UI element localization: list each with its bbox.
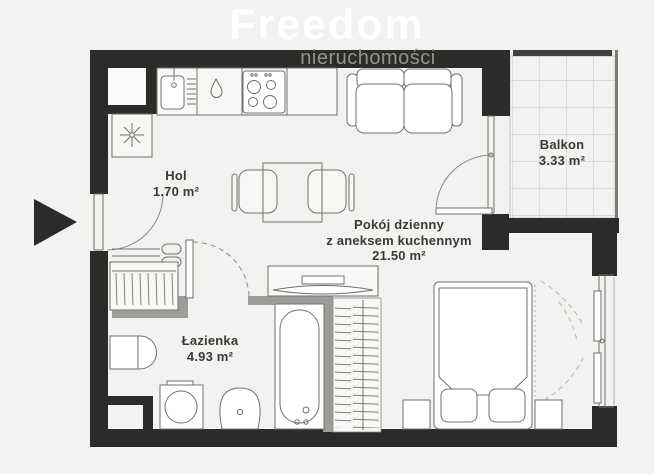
- bathroom-door-swing: [193, 242, 249, 298]
- bathroom-sink: [110, 336, 157, 369]
- pillow-left: [441, 389, 477, 422]
- room-area: 1.70 m²: [153, 184, 199, 200]
- balcony-rail: [615, 50, 618, 233]
- entrance-arrow: [34, 199, 77, 246]
- room-name-line2: z aneksem kuchennym: [326, 233, 471, 249]
- window-panel-upper: [594, 291, 601, 341]
- entrance-door: [94, 194, 163, 250]
- room-label-bathroom: Łazienka 4.93 m²: [182, 333, 239, 364]
- balcony-top-wall: [513, 50, 612, 56]
- pillow-right: [489, 389, 525, 422]
- wall-bath-niche-v: [143, 396, 153, 430]
- bedroom-window: [594, 275, 614, 407]
- floor-plan-screenshot: Hol 1.70 m² Pokój dzienny z aneksem kuch…: [0, 0, 654, 474]
- watermark-subtitle: nieruchomości: [300, 47, 435, 70]
- room-area: 21.50 m²: [326, 248, 471, 264]
- wall-bedroom-right-upper: [592, 233, 617, 276]
- bedroom-wardrobe: [333, 298, 381, 432]
- room-name: Łazienka: [182, 333, 239, 349]
- sofa-seat-right: [404, 84, 452, 133]
- bathroom-door: [186, 240, 249, 298]
- room-label-balcony: Balkon 3.33 m²: [539, 137, 585, 168]
- window-panel-lower: [594, 353, 601, 403]
- sofa: [347, 69, 462, 133]
- tv-unit: [268, 266, 378, 296]
- room-area: 4.93 m²: [182, 349, 239, 365]
- chair-left-seat: [239, 170, 277, 213]
- boiler-closet: [112, 114, 152, 157]
- sofa-seat-left: [356, 84, 404, 133]
- curtains: [535, 281, 583, 400]
- tv-mount: [302, 276, 344, 284]
- ventilation-shaft: [108, 68, 146, 105]
- toilet: [220, 388, 260, 429]
- bathtub: [275, 304, 324, 429]
- balcony-door-leaf: [436, 208, 492, 214]
- room-area: 3.33 m²: [539, 153, 585, 169]
- watermark-brand: Freedom: [229, 1, 425, 50]
- room-label-living: Pokój dzienny z aneksem kuchennym 21.50 …: [326, 217, 471, 264]
- sofa-armrest-right: [451, 74, 462, 126]
- entrance-door-swing: [107, 194, 163, 250]
- wall-left-upper: [90, 50, 108, 194]
- chair-right-seat: [308, 170, 346, 213]
- washing-machine: [160, 381, 203, 429]
- wall-left-lower: [90, 251, 108, 447]
- room-name: Hol: [153, 168, 199, 184]
- room-name: Balkon: [539, 137, 585, 153]
- balcony-door-swing: [436, 155, 492, 211]
- hall-wardrobe: [110, 262, 178, 310]
- wall-bedroom-right-lower: [592, 406, 617, 431]
- nightstand-right: [535, 400, 562, 429]
- dining-chairs: [232, 170, 354, 213]
- nightstand-left: [403, 400, 430, 429]
- cooktop: [243, 71, 285, 113]
- chair-left-back: [232, 174, 237, 211]
- room-label-hol: Hol 1.70 m²: [153, 168, 199, 199]
- chair-right-back: [349, 174, 354, 211]
- wall-living-balcony-upper: [482, 50, 510, 116]
- double-bed: [434, 282, 532, 429]
- wall-balcony-bottom: [500, 218, 619, 233]
- room-name: Pokój dzienny: [326, 217, 471, 233]
